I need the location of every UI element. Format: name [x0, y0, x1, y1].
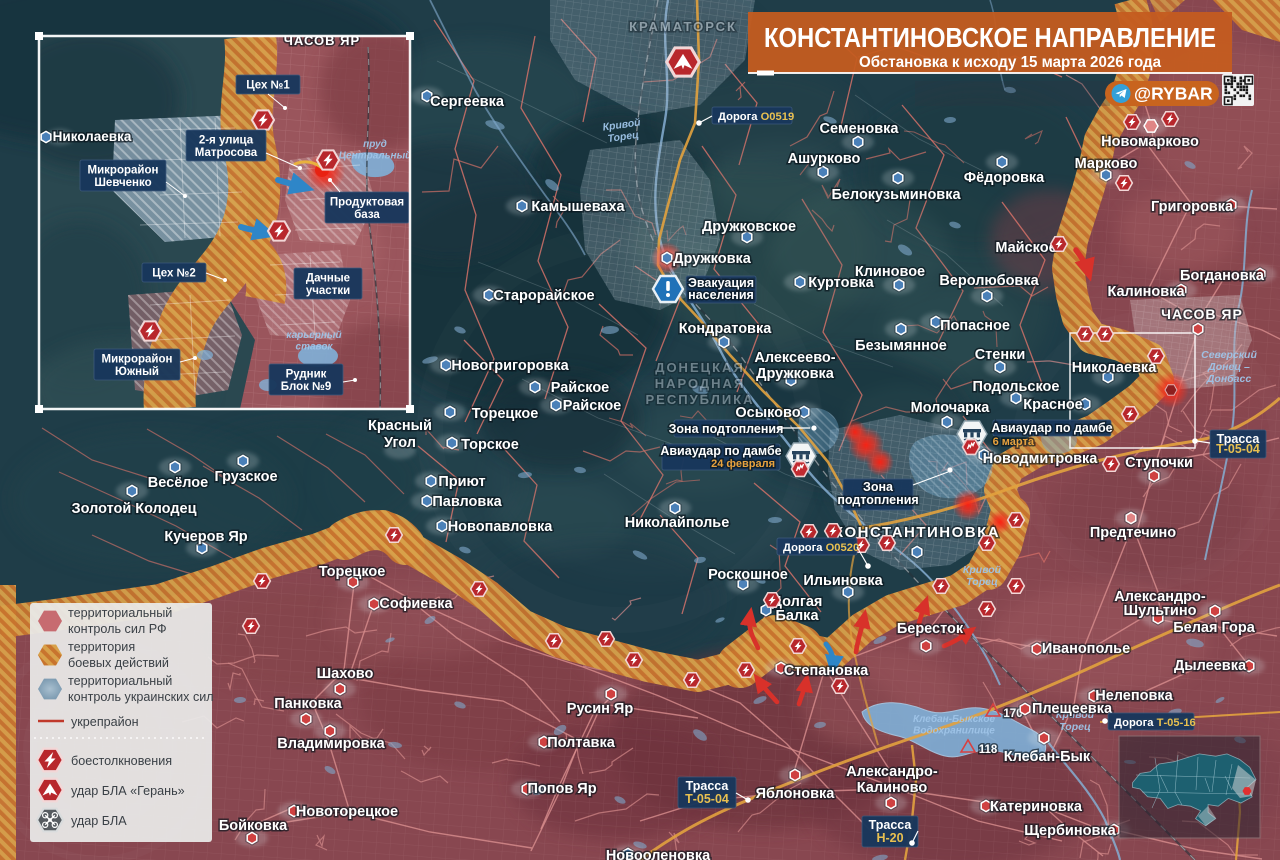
svg-text:Веролюбовка: Веролюбовка: [939, 273, 1039, 289]
svg-text:Майское: Майское: [995, 240, 1056, 256]
svg-text:Попов Яр: Попов Яр: [527, 781, 596, 797]
svg-text:Цех №1: Цех №1: [246, 80, 290, 92]
svg-text:Русин Яр: Русин Яр: [567, 701, 634, 717]
svg-text:Трасса: Трасса: [869, 818, 913, 832]
svg-text:Новомарково: Новомарково: [1101, 134, 1199, 150]
svg-text:Грузское: Грузское: [214, 469, 277, 485]
svg-text:Клебан-Быкское: Клебан-Быкское: [913, 713, 995, 725]
svg-text:НАРОДНАЯ: НАРОДНАЯ: [655, 376, 746, 391]
svg-text:Бересток: Бересток: [897, 621, 964, 637]
svg-text:Золотой Колодец: Золотой Колодец: [71, 501, 196, 517]
svg-text:Продуктовая: Продуктовая: [330, 196, 404, 208]
svg-text:Стенки: Стенки: [975, 347, 1026, 363]
svg-text:Н-20: Н-20: [876, 831, 903, 845]
svg-text:Зона подтопления: Зона подтопления: [669, 422, 784, 436]
svg-text:118: 118: [979, 744, 998, 756]
svg-text:Ашурково: Ашурково: [788, 151, 861, 167]
svg-text:2-я улица: 2-я улица: [199, 134, 254, 146]
svg-text:Рудник: Рудник: [286, 368, 327, 380]
svg-text:Григоровка: Григоровка: [1151, 199, 1234, 215]
svg-text:Николаевка: Николаевка: [53, 129, 132, 144]
svg-text:Белокузьминовка: Белокузьминовка: [831, 187, 961, 203]
svg-text:Дорога О0520: Дорога О0520: [783, 542, 859, 554]
svg-text:Иванополье: Иванополье: [1042, 641, 1130, 657]
svg-text:Микрорайон: Микрорайон: [88, 164, 159, 176]
svg-text:Торец: Торец: [1059, 721, 1091, 733]
svg-text:Новоторецкое: Новоторецкое: [296, 804, 398, 820]
svg-text:Ступочки: Ступочки: [1125, 455, 1193, 471]
svg-text:Т-05-04: Т-05-04: [1216, 442, 1260, 456]
svg-text:Попасное: Попасное: [940, 318, 1010, 334]
svg-text:Кривой: Кривой: [963, 564, 1002, 576]
svg-text:Николайполье: Николайполье: [625, 515, 730, 531]
svg-text:Калиново: Калиново: [857, 780, 928, 796]
svg-text:Торецкое: Торецкое: [472, 406, 539, 422]
svg-text:укрепрайон: укрепрайон: [71, 715, 139, 729]
svg-text:Яблоновка: Яблоновка: [756, 786, 836, 802]
svg-text:Бойковка: Бойковка: [219, 818, 288, 834]
svg-text:Ильиновка: Ильиновка: [803, 573, 883, 589]
svg-text:Торское: Торское: [461, 437, 519, 453]
svg-text:КОНСТАНТИНОВСКОЕ НАПРАВЛЕНИЕ: КОНСТАНТИНОВСКОЕ НАПРАВЛЕНИЕ: [764, 22, 1216, 53]
svg-text:территориальный: территориальный: [68, 606, 172, 620]
svg-text:Новогригоровка: Новогригоровка: [451, 358, 569, 374]
svg-text:база: база: [354, 209, 380, 221]
svg-text:Дачные: Дачные: [306, 272, 350, 284]
svg-text:Александро-: Александро-: [846, 764, 938, 780]
svg-text:Осыково: Осыково: [735, 405, 800, 421]
svg-text:Центральный: Центральный: [339, 151, 411, 162]
svg-text:Шахово: Шахово: [317, 666, 374, 682]
svg-text:Безымянное: Безымянное: [855, 338, 947, 354]
svg-text:Кучеров Яр: Кучеров Яр: [164, 529, 247, 545]
svg-text:Богдановка: Богдановка: [1180, 268, 1265, 284]
svg-text:Семеновка: Семеновка: [820, 121, 900, 137]
svg-text:Клебан-Бык: Клебан-Бык: [1004, 749, 1091, 765]
svg-text:подтопления: подтопления: [837, 493, 918, 507]
svg-text:Фёдоровка: Фёдоровка: [964, 170, 1045, 186]
svg-text:Владимировка: Владимировка: [277, 736, 385, 752]
svg-text:Панковка: Панковка: [274, 696, 342, 712]
svg-text:Т-05-04: Т-05-04: [685, 792, 729, 806]
svg-text:Сергеевка: Сергеевка: [430, 94, 505, 110]
svg-text:Шевченко: Шевченко: [94, 177, 151, 189]
svg-text:Кондратовка: Кондратовка: [679, 321, 773, 337]
svg-text:Новодмитровка: Новодмитровка: [983, 451, 1099, 467]
svg-text:Микрорайон: Микрорайон: [102, 353, 173, 365]
svg-text:пруд: пруд: [363, 139, 387, 150]
svg-text:24 февраля: 24 февраля: [711, 458, 775, 470]
svg-text:Матросова: Матросова: [195, 147, 258, 159]
svg-text:Камышеваха: Камышеваха: [531, 199, 625, 215]
svg-text:Полтавка: Полтавка: [547, 735, 615, 751]
svg-text:ставок: ставок: [296, 342, 334, 353]
svg-text:Новооленовка: Новооленовка: [606, 848, 711, 860]
svg-text:ДОНЕЦКАЯ: ДОНЕЦКАЯ: [655, 360, 745, 375]
svg-text:Торец: Торец: [966, 576, 998, 588]
svg-text:Белая Гора: Белая Гора: [1173, 620, 1255, 636]
svg-text:боестолкновения: боестолкновения: [71, 754, 172, 768]
svg-text:Шультино: Шультино: [1124, 603, 1197, 619]
svg-text:Угол: Угол: [384, 435, 416, 451]
svg-text:Щербиновка: Щербиновка: [1024, 823, 1116, 839]
svg-text:Райское: Райское: [563, 398, 622, 414]
svg-text:Молочарка: Молочарка: [911, 400, 991, 416]
svg-text:Плещеевка: Плещеевка: [1032, 701, 1113, 717]
svg-text:удар БЛА «Герань»: удар БЛА «Герань»: [71, 784, 185, 798]
svg-text:Балка: Балка: [775, 608, 819, 624]
svg-text:Обстановка к исходу 15 марта 2: Обстановка к исходу 15 марта 2026 года: [859, 54, 1161, 71]
svg-text:территория: территория: [68, 640, 135, 654]
svg-text:Дорога О0519: Дорога О0519: [718, 111, 794, 123]
svg-text:КРАМАТОРСК: КРАМАТОРСК: [629, 19, 737, 34]
svg-text:карьерный: карьерный: [286, 330, 341, 341]
svg-text:контроль украинских сил: контроль украинских сил: [68, 690, 214, 704]
svg-text:Блок №9: Блок №9: [281, 381, 332, 393]
svg-text:Водохранилище: Водохранилище: [913, 726, 995, 737]
svg-text:@RYBAR: @RYBAR: [1134, 84, 1213, 104]
svg-text:Катериновка: Катериновка: [990, 799, 1083, 815]
svg-text:контроль сил РФ: контроль сил РФ: [68, 622, 167, 636]
svg-text:Донбасс: Донбасс: [1206, 373, 1252, 385]
svg-text:Цех №2: Цех №2: [152, 268, 196, 280]
svg-text:Авиаудар по дамбе: Авиаудар по дамбе: [660, 444, 781, 458]
svg-text:Весёлое: Весёлое: [148, 475, 208, 491]
svg-text:Калиновка: Калиновка: [1107, 284, 1185, 300]
svg-text:Клиновое: Клиновое: [855, 264, 925, 280]
svg-text:Софиевка: Софиевка: [379, 596, 453, 612]
svg-text:Степановка: Степановка: [784, 663, 869, 679]
svg-text:Дорога Т-05-16: Дорога Т-05-16: [1114, 717, 1196, 729]
svg-text:Райское: Райское: [551, 380, 610, 396]
svg-text:Дылеевка: Дылеевка: [1174, 658, 1247, 674]
svg-text:территориальный: территориальный: [68, 674, 172, 688]
svg-text:боевых действий: боевых действий: [68, 656, 169, 670]
svg-text:Авиаудар по дамбе: Авиаудар по дамбе: [991, 421, 1112, 435]
svg-text:Трасса: Трасса: [686, 779, 730, 793]
svg-text:Предтечино: Предтечино: [1090, 525, 1176, 541]
svg-text:участки: участки: [306, 285, 350, 297]
svg-text:Дружковское: Дружковское: [702, 219, 796, 235]
svg-text:Южный: Южный: [115, 366, 159, 378]
svg-text:удар БЛА: удар БЛА: [71, 814, 127, 828]
svg-text:Марково: Марково: [1075, 156, 1138, 172]
svg-text:Николаевка: Николаевка: [1072, 360, 1157, 376]
svg-text:Зона: Зона: [863, 480, 894, 494]
svg-text:Торецкое: Торецкое: [319, 564, 386, 580]
